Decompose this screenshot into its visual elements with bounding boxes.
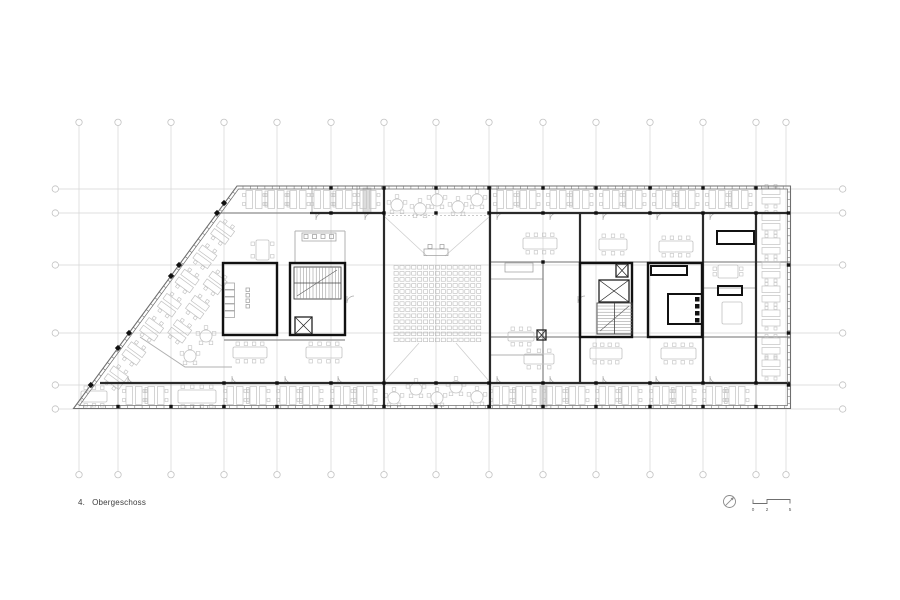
column (787, 383, 790, 386)
desk-group (570, 191, 594, 209)
facade-mullion (142, 315, 144, 317)
facade-mullion (164, 286, 166, 288)
chair (765, 327, 768, 330)
desk (762, 360, 780, 367)
seat (465, 338, 469, 342)
desk-group (513, 387, 537, 405)
desk-group-diagonal (209, 218, 237, 248)
chair (586, 399, 589, 402)
chair (765, 377, 768, 380)
column (329, 211, 332, 214)
chair (251, 255, 255, 259)
chair (470, 402, 474, 406)
grid-bubble (52, 382, 58, 388)
conference-table (722, 302, 742, 324)
chair (427, 394, 431, 398)
column (541, 405, 544, 408)
chair (653, 194, 656, 197)
seat (418, 284, 422, 288)
chair (653, 203, 656, 206)
seat (424, 338, 428, 342)
chair (475, 387, 479, 391)
chair (216, 270, 220, 274)
chair (601, 361, 605, 365)
seat (453, 272, 457, 276)
column (648, 405, 651, 408)
desk (227, 387, 234, 405)
chair (374, 399, 377, 402)
chair (456, 197, 460, 201)
desk-group-diagonal (173, 266, 201, 296)
table (722, 302, 742, 324)
seat (441, 338, 445, 342)
desk-group (224, 387, 248, 405)
round-table (427, 190, 447, 209)
seat (459, 338, 463, 342)
grid-bubble (274, 472, 280, 478)
chair (336, 342, 340, 346)
table (718, 265, 738, 278)
conference-table (81, 386, 107, 407)
seat (477, 290, 481, 294)
chair (662, 236, 666, 240)
seat (406, 290, 410, 294)
desk (739, 387, 746, 405)
chair (244, 342, 248, 346)
seat (459, 302, 463, 306)
seat (447, 314, 451, 318)
chair (690, 343, 694, 347)
fixture (505, 263, 533, 272)
fixture (321, 235, 325, 239)
seat (412, 296, 416, 300)
seat (453, 314, 457, 318)
scale-bar: 0 2 5 (752, 500, 792, 513)
chair (101, 386, 105, 390)
desk-group (676, 191, 700, 209)
chair (180, 318, 184, 322)
seat (447, 284, 451, 288)
chair (664, 361, 668, 365)
chair (480, 402, 484, 406)
chair (374, 390, 377, 393)
appliance (695, 297, 700, 302)
seat (453, 296, 457, 300)
seat (465, 284, 469, 288)
seat (477, 284, 481, 288)
seat (441, 326, 445, 330)
grid-bubble (221, 119, 227, 125)
chair (461, 212, 465, 216)
desk (256, 191, 263, 209)
seat (412, 266, 416, 270)
fixture (246, 294, 250, 298)
desk (762, 238, 780, 245)
grid-bubble (647, 472, 653, 478)
floor-name: Obergeschoss (92, 498, 146, 507)
column (329, 405, 332, 408)
desk (278, 191, 285, 209)
chair (690, 361, 694, 365)
desk (716, 387, 723, 405)
chair (774, 259, 777, 262)
grid-bubble (328, 119, 334, 125)
chair (548, 349, 552, 353)
seat (453, 290, 457, 294)
round-table (467, 387, 487, 406)
seat (424, 278, 428, 282)
chair (377, 194, 380, 197)
seat (441, 296, 445, 300)
chair (765, 235, 768, 238)
desk (709, 191, 716, 209)
chair (464, 203, 468, 207)
desk-group (191, 242, 219, 272)
seat (394, 338, 398, 342)
chair (681, 343, 685, 347)
chair (261, 342, 265, 346)
chair (547, 194, 550, 197)
conference-table (251, 240, 274, 260)
seat (465, 272, 469, 276)
desk (280, 387, 287, 405)
chair (252, 360, 256, 364)
chair (236, 342, 240, 346)
seat (406, 326, 410, 330)
round-table (467, 190, 487, 209)
round-table (387, 195, 407, 214)
column (541, 260, 544, 263)
seat (447, 290, 451, 294)
seat (400, 266, 404, 270)
seat (477, 308, 481, 312)
fixture (225, 304, 235, 311)
seat (394, 332, 398, 336)
facade-outer (74, 186, 791, 409)
facade-mullion (185, 257, 187, 259)
grid-bubble (540, 472, 546, 478)
desk-group (120, 339, 148, 369)
chair (142, 346, 146, 350)
desk (246, 191, 253, 209)
chair (774, 235, 777, 238)
seat (424, 272, 428, 276)
seat (447, 278, 451, 282)
facade-mullion (133, 327, 135, 329)
desk (636, 191, 643, 209)
seat (400, 314, 404, 318)
chair (467, 393, 471, 397)
chair (271, 242, 275, 246)
seat (412, 338, 416, 342)
chair (590, 194, 593, 197)
seat (400, 296, 404, 300)
column (648, 381, 651, 384)
chair (765, 279, 768, 282)
chair (409, 394, 413, 398)
chair (336, 360, 340, 364)
seat (429, 290, 433, 294)
seat (471, 320, 475, 324)
desk-group (155, 290, 183, 320)
chair (210, 405, 214, 409)
desk (676, 387, 683, 405)
desk-group (311, 191, 335, 209)
chair (616, 343, 620, 347)
seat (441, 278, 445, 282)
seat (465, 302, 469, 306)
chair (188, 346, 192, 350)
built-in-counter (717, 231, 754, 244)
chair (643, 194, 646, 197)
chair (765, 307, 768, 310)
grid-bubble (840, 186, 846, 192)
floor-number: 4. (78, 498, 85, 507)
stair (597, 303, 632, 334)
round-table (446, 377, 466, 396)
seat (447, 272, 451, 276)
table-top (431, 194, 443, 206)
desk (344, 387, 351, 405)
desk-group-diagonal (166, 316, 194, 346)
chair (470, 205, 474, 209)
desk (493, 387, 500, 405)
chair (209, 341, 213, 345)
chair (602, 252, 606, 256)
desk (136, 387, 143, 405)
seat (424, 326, 428, 330)
seat (471, 272, 475, 276)
desk (609, 387, 616, 405)
chair (423, 214, 427, 218)
chair (170, 292, 174, 296)
seat (400, 320, 404, 324)
grid-bubble (274, 119, 280, 125)
seat (477, 296, 481, 300)
seat (394, 284, 398, 288)
seat (441, 266, 445, 270)
auditorium-seating (394, 266, 481, 342)
seat (453, 284, 457, 288)
desk (663, 387, 670, 405)
chair (443, 196, 447, 200)
elevator (295, 317, 312, 334)
seat (465, 332, 469, 336)
fixture (440, 245, 444, 249)
chair (616, 361, 620, 365)
table (590, 348, 622, 359)
chair (528, 327, 532, 331)
grid-bubble (52, 186, 58, 192)
seat (471, 266, 475, 270)
chair (696, 203, 699, 206)
seat (412, 284, 416, 288)
stair (294, 267, 341, 299)
chair (449, 392, 453, 396)
chair (419, 394, 423, 398)
seat (424, 266, 428, 270)
grid-bubble (381, 119, 387, 125)
seat (429, 326, 433, 330)
appliance (695, 311, 700, 316)
seat (429, 266, 433, 270)
chair (494, 194, 497, 197)
chair (124, 370, 128, 374)
seat (394, 278, 398, 282)
table (523, 238, 557, 249)
seat (424, 314, 428, 318)
column (275, 381, 278, 384)
seat (459, 308, 463, 312)
desk (762, 338, 780, 345)
desk-group (494, 191, 518, 209)
scale-label-5: 5 (789, 507, 792, 512)
desk (732, 191, 739, 209)
chair (621, 252, 625, 256)
chair (681, 361, 685, 365)
chair (400, 394, 404, 398)
desk (290, 191, 297, 209)
column (487, 405, 490, 408)
desk (686, 387, 693, 405)
chair (187, 324, 191, 328)
desk (666, 191, 673, 209)
facade-mullion (207, 227, 209, 229)
desk (762, 248, 780, 255)
facade-mullion (138, 321, 140, 323)
seat (465, 308, 469, 312)
chair (440, 403, 444, 407)
facade-mullion (151, 304, 153, 306)
chair (527, 349, 531, 353)
chair (318, 360, 322, 364)
seat (412, 320, 416, 324)
seat (424, 302, 428, 306)
seat (459, 278, 463, 282)
chair (191, 385, 195, 389)
chair (443, 394, 447, 398)
seat (471, 284, 475, 288)
facade-mullion (181, 262, 183, 264)
built-in-counter (718, 286, 742, 295)
appliance (695, 318, 700, 323)
seat (441, 302, 445, 306)
column (541, 381, 544, 384)
desk-group-diagonal (191, 242, 219, 272)
sight-line (385, 217, 427, 256)
seat (447, 302, 451, 306)
desk-group (653, 191, 677, 209)
desk (260, 387, 267, 405)
desk-group (183, 292, 211, 322)
seat (471, 332, 475, 336)
facade-mullion (211, 221, 213, 223)
chair (451, 212, 455, 216)
seat (412, 326, 416, 330)
column (787, 211, 790, 214)
facade-mullion (176, 268, 178, 270)
chair (673, 361, 677, 365)
door-arc (347, 296, 354, 303)
seat (471, 302, 475, 306)
facade-mullion (86, 392, 88, 394)
seat (465, 320, 469, 324)
chair (309, 342, 313, 346)
chair (205, 244, 209, 248)
desk (622, 387, 629, 405)
column (434, 211, 437, 214)
scale-label-0: 0 (752, 507, 755, 512)
desk (599, 387, 606, 405)
facade-mullion (146, 310, 148, 312)
chair (527, 366, 531, 370)
seat (465, 314, 469, 318)
desk-group (123, 387, 147, 405)
round-table (196, 326, 216, 345)
desk-group (138, 314, 166, 344)
floor-label: 4.Obergeschoss (78, 498, 146, 507)
seat (418, 326, 422, 330)
chair (196, 332, 200, 336)
seat (424, 308, 428, 312)
chair (200, 385, 204, 389)
seat (453, 338, 457, 342)
desk-group (762, 357, 780, 381)
chair (600, 194, 603, 197)
chair (191, 405, 195, 409)
column (541, 211, 544, 214)
chair (327, 342, 331, 346)
chair (706, 194, 709, 197)
grid-bubble (486, 472, 492, 478)
chair (601, 343, 605, 347)
fixture (225, 290, 235, 297)
grid-bubble (221, 472, 227, 478)
column (434, 381, 437, 384)
chair (353, 203, 356, 206)
seat (429, 332, 433, 336)
desk-group (762, 307, 780, 331)
chair (180, 352, 184, 356)
desk-group (173, 266, 201, 296)
chair (236, 360, 240, 364)
desk (762, 310, 780, 317)
chair (243, 203, 246, 206)
chair (181, 385, 185, 389)
sight-line (456, 343, 489, 381)
seat (406, 314, 410, 318)
seat (394, 302, 398, 306)
round-table (427, 388, 447, 407)
chair (670, 236, 674, 240)
desk-group (354, 387, 378, 405)
table (306, 347, 342, 358)
column (701, 211, 704, 214)
desk-group-diagonal (138, 314, 166, 344)
seat (471, 296, 475, 300)
chair (746, 390, 749, 393)
desk (237, 387, 244, 405)
seat (447, 266, 451, 270)
chair (395, 195, 399, 199)
grid-bubble (840, 382, 846, 388)
conference-table (306, 342, 342, 363)
chair (765, 283, 768, 286)
chair (765, 231, 768, 234)
seat (400, 302, 404, 306)
column (754, 211, 757, 214)
desk (346, 191, 353, 209)
